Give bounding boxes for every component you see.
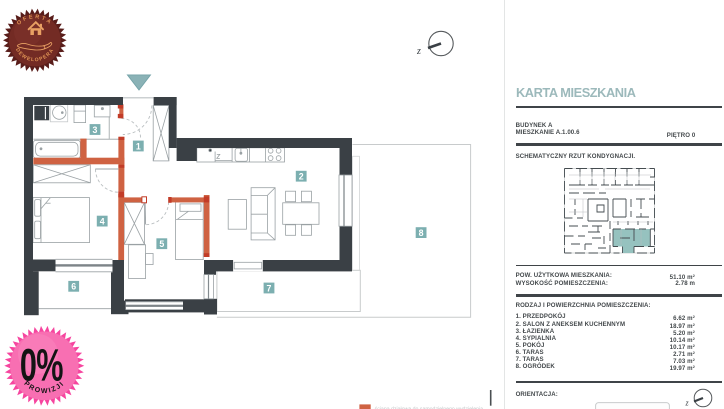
svg-text:5: 5 (159, 239, 164, 249)
svg-text:2: 2 (299, 172, 304, 182)
svg-text:4: 4 (100, 216, 105, 226)
svg-text:z: z (416, 46, 421, 57)
svg-text:z: z (685, 399, 690, 408)
svg-text:7: 7 (267, 283, 272, 293)
svg-text:1: 1 (136, 141, 141, 151)
svg-text:3: 3 (93, 125, 98, 135)
svg-text:8: 8 (419, 228, 424, 238)
svg-text:6: 6 (71, 282, 76, 292)
